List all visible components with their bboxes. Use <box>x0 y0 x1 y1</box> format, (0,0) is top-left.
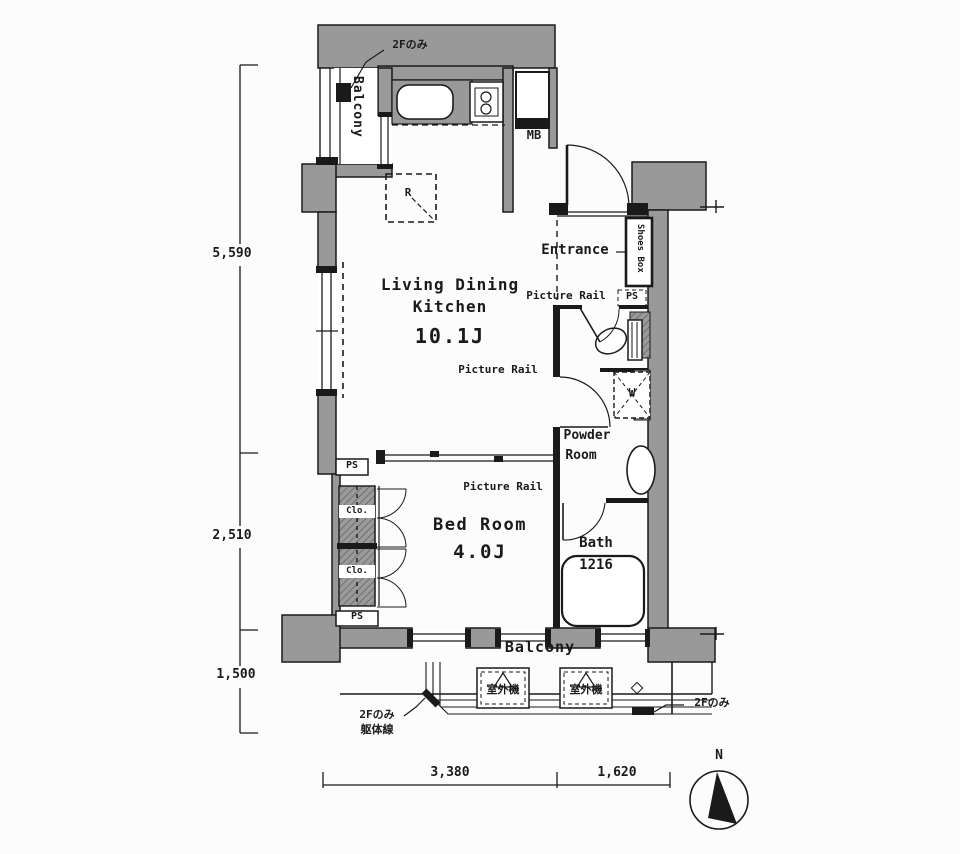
dimension-left-3: 1,500 <box>204 668 268 682</box>
partition-2f-left <box>424 691 438 705</box>
picture-rail-label-bedroom: Picture Rail <box>455 481 551 493</box>
room-label-balcony-top: Balcony <box>350 76 364 138</box>
pipe-space-label-left-upper: PS <box>336 461 368 472</box>
note-2f-only-top: 2Fのみ <box>386 39 434 51</box>
dimension-left-1: 5,590 <box>200 247 264 261</box>
outdoor-unit-label-right: 室外機 <box>563 684 609 696</box>
compass-north-label: N <box>710 749 728 763</box>
floor-plan-drawing <box>0 0 960 854</box>
meter-box-label: MB <box>520 129 548 142</box>
washing-machine-label: W <box>622 387 642 399</box>
room-label-powder-line2: Room <box>550 449 612 463</box>
room-label-powder-line1: Powder <box>556 429 618 443</box>
floor-plan: Living Dining Kitchen 10.1J Bed Room 4.0… <box>0 0 960 854</box>
meter-box-cabinet <box>516 72 549 128</box>
balcony-rail-end <box>316 157 338 165</box>
room-label-bath-size: 1216 <box>564 558 628 573</box>
balcony-bottom-structure <box>340 662 712 715</box>
picture-rail-label-entrance: Picture Rail <box>520 290 612 302</box>
wc-door-leaf <box>580 308 600 342</box>
room-label-entrance: Entrance <box>534 243 616 258</box>
note-structure-line: 躯体線 <box>350 724 404 736</box>
room-label-bedroom-size: 4.0J <box>420 543 540 563</box>
outdoor-unit-label-left: 室外機 <box>480 684 526 696</box>
washbasin <box>627 446 655 494</box>
note-2f-only-bottom-right: 2Fのみ <box>686 697 738 709</box>
room-label-ldk-line1: Living Dining <box>360 277 540 294</box>
picture-rail-label-ldk: Picture Rail <box>450 364 546 376</box>
room-label-bedroom: Bed Room <box>420 517 540 535</box>
survey-ticks <box>700 200 724 640</box>
pipe-space-label-left-lower: PS <box>336 612 378 623</box>
entrance-door-swing <box>567 145 629 207</box>
room-label-bath: Bath <box>566 536 626 551</box>
balcony-partition-2f <box>336 83 351 102</box>
kitchen-sink <box>397 85 453 119</box>
refrigerator-label: R <box>400 187 416 199</box>
closet-label-lower: Clo. <box>339 565 375 578</box>
sliding-door <box>376 450 553 464</box>
room-label-balcony-bottom: Balcony <box>500 640 580 656</box>
partition-2f-right <box>632 707 654 715</box>
toilet <box>580 308 650 360</box>
dimension-bottom-2: 1,620 <box>585 766 649 780</box>
note-2f-only-bottom-left: 2Fのみ <box>350 709 404 721</box>
dimension-bottom-1: 3,380 <box>415 766 485 780</box>
pipe-space-label-entrance: PS <box>618 292 646 303</box>
closet-label-upper: Clo. <box>339 505 375 518</box>
dimension-left-2: 2,510 <box>200 529 264 543</box>
balcony-top-structure <box>316 68 378 165</box>
compass-needle <box>708 772 737 824</box>
room-label-ldk-line2: Kitchen <box>360 299 540 316</box>
room-label-ldk-size: 10.1J <box>360 326 540 347</box>
powder-room-door <box>560 377 610 427</box>
compass <box>690 771 748 829</box>
shoes-box-label: Shoes Box <box>635 224 644 273</box>
kitchen-fixtures <box>392 80 505 125</box>
drain-mark <box>631 682 642 693</box>
